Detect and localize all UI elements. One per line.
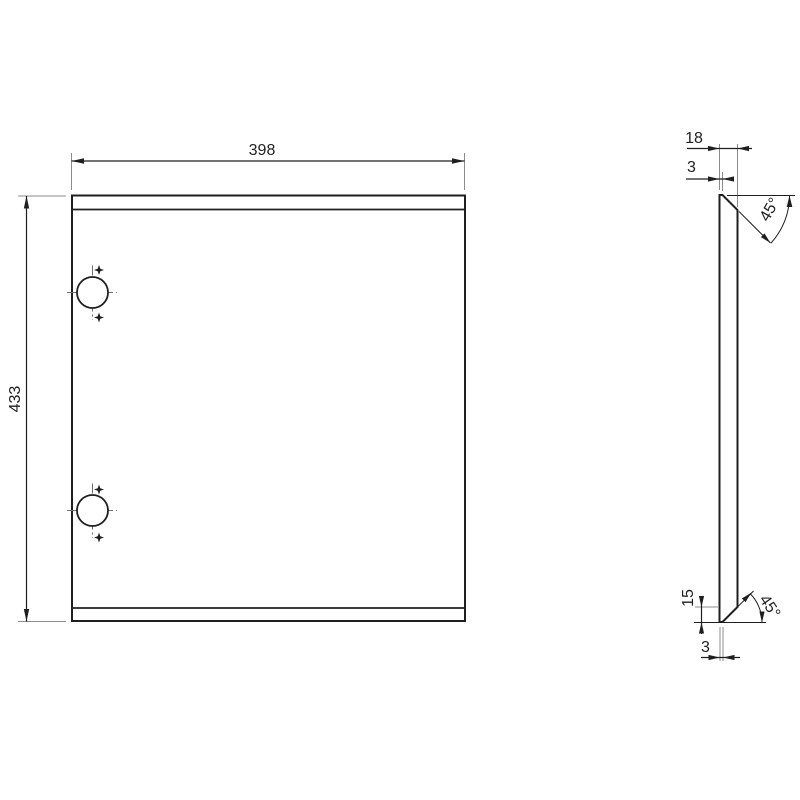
technical-drawing: 398 433 18 3 [0, 0, 800, 800]
hole-bottom-circle [77, 495, 108, 526]
plate-outline [72, 196, 465, 622]
hole-top-circle [77, 277, 108, 308]
dimension-value: 15 [680, 589, 697, 607]
dimension-value: 3 [687, 159, 696, 176]
drawing-canvas: 398 433 18 3 [0, 0, 800, 800]
side-profile-outline [720, 195, 738, 622]
dimension-value: 3 [701, 639, 710, 656]
dimension-value: 18 [685, 130, 703, 147]
front-view: 398 433 [7, 142, 465, 622]
dimension-value: 398 [249, 142, 276, 159]
dimension-value: 433 [7, 386, 24, 413]
